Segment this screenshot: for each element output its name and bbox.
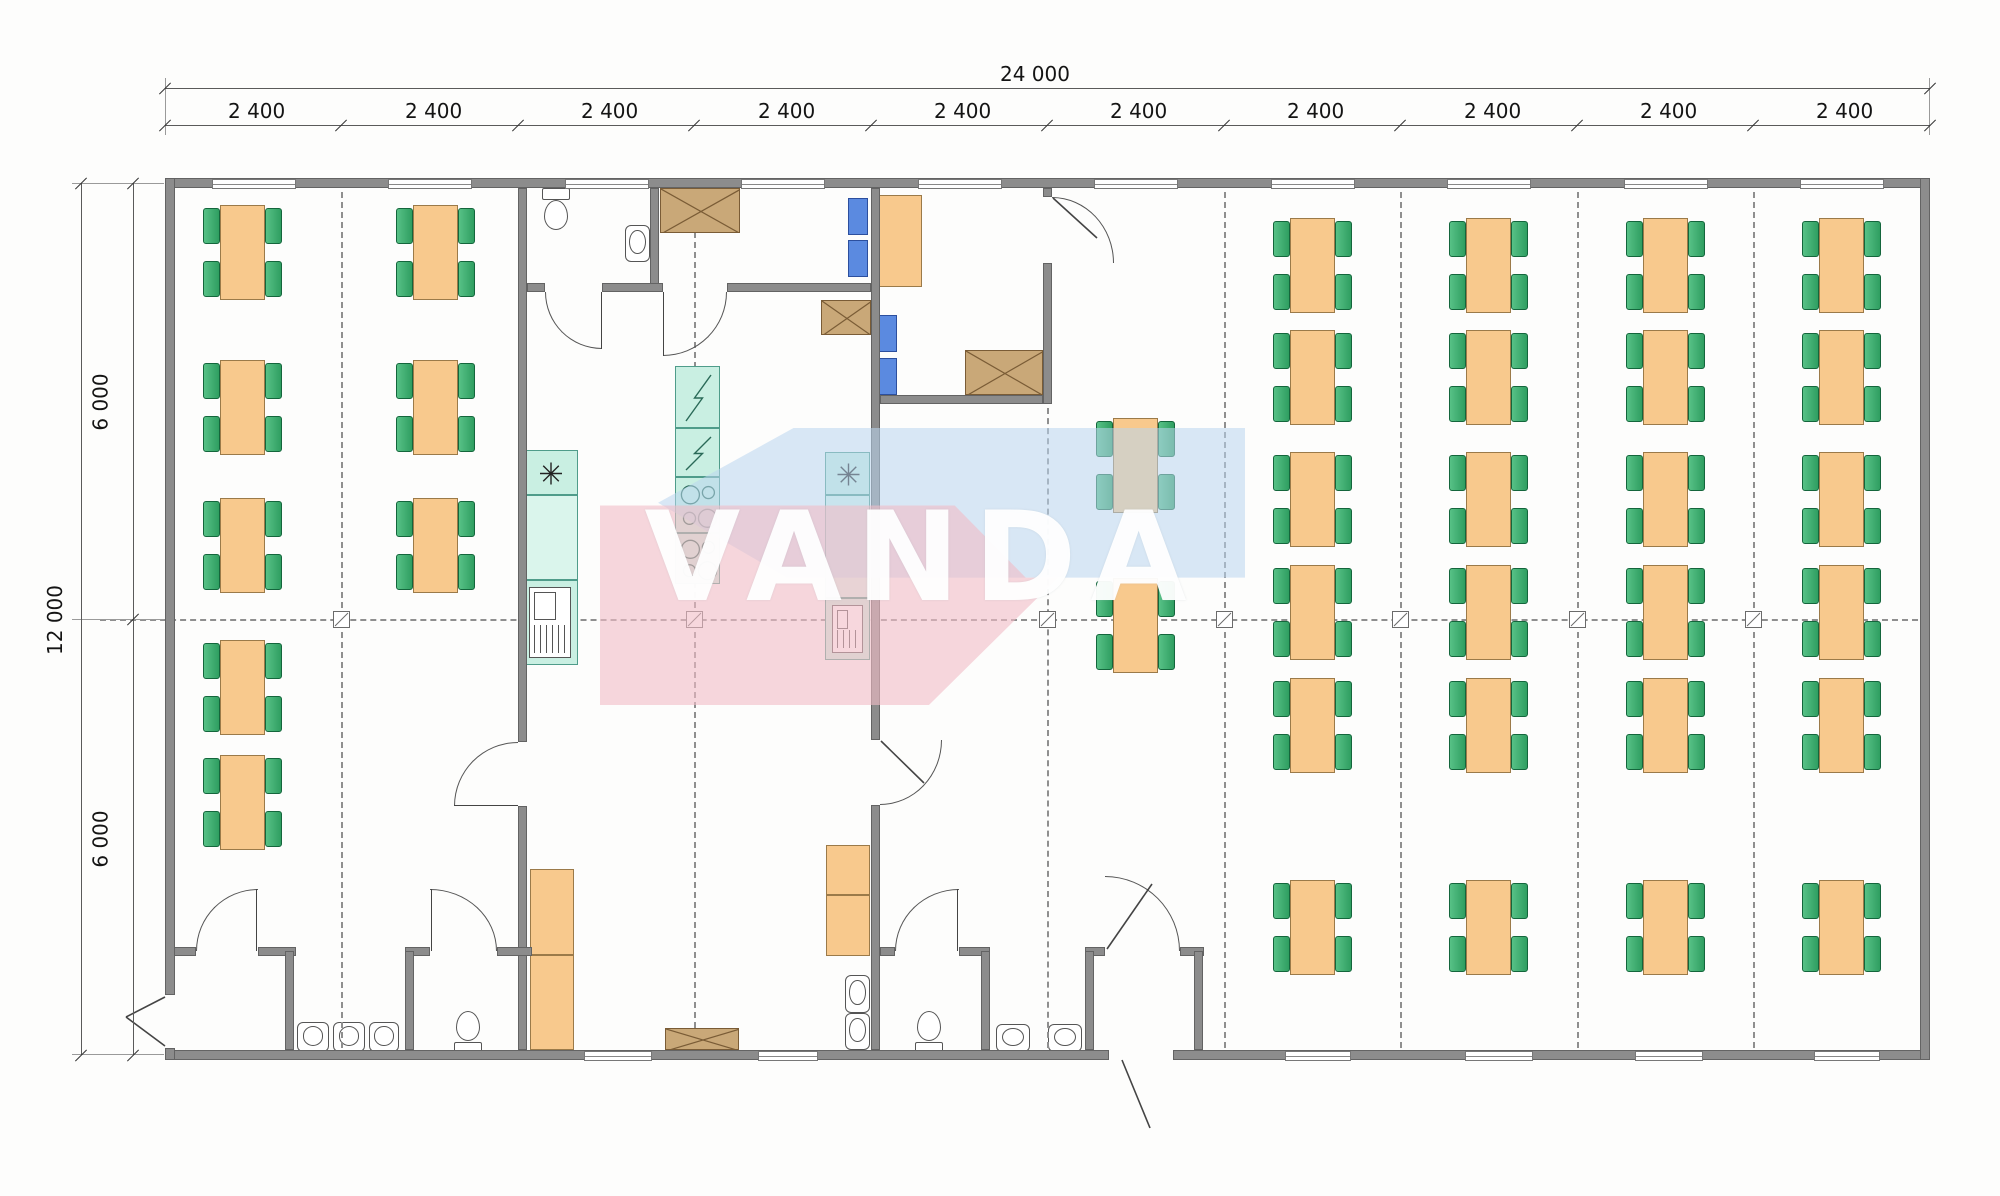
wall-segment bbox=[880, 947, 895, 956]
wall-segment bbox=[871, 188, 880, 740]
window bbox=[1800, 179, 1884, 189]
window bbox=[1271, 179, 1355, 189]
dim-segment-label: 2 400 bbox=[228, 99, 285, 123]
wall-segment bbox=[405, 951, 414, 1050]
dim-half-height-2: 6 000 bbox=[89, 810, 113, 867]
wall-segment bbox=[871, 805, 880, 1050]
wall-segment bbox=[527, 283, 545, 292]
window bbox=[741, 179, 825, 189]
window bbox=[1285, 1051, 1351, 1061]
window bbox=[212, 179, 296, 189]
dim-segment-label: 2 400 bbox=[1640, 99, 1697, 123]
dim-total-width: 24 000 bbox=[1000, 62, 1070, 86]
window bbox=[918, 179, 1002, 189]
window bbox=[1447, 179, 1531, 189]
wall-segment bbox=[497, 947, 532, 956]
window bbox=[1465, 1051, 1533, 1061]
wall-segment bbox=[1194, 951, 1203, 1050]
wall-segment bbox=[880, 395, 1043, 404]
dim-segment-label: 2 400 bbox=[405, 99, 462, 123]
dim-segment-label: 2 400 bbox=[758, 99, 815, 123]
dim-line-total-height bbox=[81, 183, 82, 1055]
wall-segment bbox=[602, 283, 663, 292]
wall-segment bbox=[518, 188, 527, 742]
dim-segment-label: 2 400 bbox=[1464, 99, 1521, 123]
dim-segment-label: 2 400 bbox=[1287, 99, 1344, 123]
wall-segment bbox=[285, 951, 294, 1050]
window bbox=[388, 179, 472, 189]
wall-segment bbox=[1085, 951, 1094, 1050]
window bbox=[565, 179, 649, 189]
wall-segment bbox=[981, 951, 990, 1050]
window bbox=[1814, 1051, 1880, 1061]
wall-segment bbox=[1043, 263, 1052, 404]
wall-segment bbox=[165, 1048, 175, 1060]
window bbox=[1094, 179, 1178, 189]
dim-segment-label: 2 400 bbox=[934, 99, 991, 123]
window bbox=[758, 1051, 818, 1061]
dim-line-total-width bbox=[165, 88, 1930, 89]
wall-segment bbox=[1043, 188, 1052, 197]
window bbox=[584, 1051, 652, 1061]
dim-half-height-1: 6 000 bbox=[89, 373, 113, 430]
window bbox=[1624, 179, 1708, 189]
wall-segment bbox=[650, 188, 659, 292]
extension-line bbox=[72, 619, 164, 620]
dim-segment-label: 2 400 bbox=[1816, 99, 1873, 123]
extension-line bbox=[72, 1054, 164, 1055]
dim-total-height: 12 000 bbox=[43, 585, 67, 655]
extension-line bbox=[72, 183, 164, 184]
floor-plan-canvas: 24 000 2 4002 4002 4002 4002 4002 4002 4… bbox=[0, 0, 2000, 1196]
dim-segment-label: 2 400 bbox=[581, 99, 638, 123]
wall-segment bbox=[1920, 178, 1930, 1060]
wall-segment bbox=[174, 947, 196, 956]
window bbox=[1635, 1051, 1703, 1061]
wall-segment bbox=[727, 283, 871, 292]
wall-segment bbox=[165, 178, 175, 995]
dim-segment-label: 2 400 bbox=[1110, 99, 1167, 123]
wall-segment bbox=[518, 806, 527, 1050]
